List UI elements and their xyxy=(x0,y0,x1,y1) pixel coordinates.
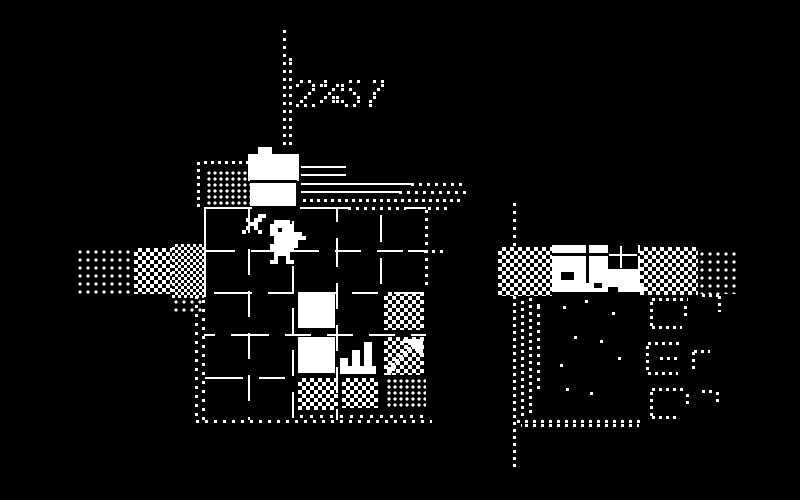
hedge-segment xyxy=(648,372,678,375)
path-checker xyxy=(134,248,172,294)
yard-checker-left xyxy=(498,247,552,296)
floor-grid-vline xyxy=(248,207,250,420)
hedge-segment xyxy=(650,302,653,326)
ground-dot xyxy=(590,392,593,395)
facade-window xyxy=(608,245,638,269)
path-dots xyxy=(76,248,134,294)
crate-tile xyxy=(298,292,335,328)
game-screen[interactable]: 2% 57 xyxy=(0,0,800,500)
yard-checker-right xyxy=(640,247,698,295)
room-left-wall-dotted xyxy=(195,296,198,422)
facade-divider xyxy=(586,245,589,283)
floor-grid-hline xyxy=(204,334,426,336)
floor-grid-hline xyxy=(204,377,300,379)
checker-tile xyxy=(384,292,424,330)
yard-dots-right xyxy=(698,250,740,294)
lamp-post-dotted-top xyxy=(513,203,516,247)
porch-mark xyxy=(594,283,602,288)
shore-dotted-2 xyxy=(521,424,639,427)
timer-pole-dotted-line xyxy=(283,30,286,150)
path-dots-lower xyxy=(172,298,204,314)
floor-dots-bottom xyxy=(300,415,430,418)
fence-dotted-3 xyxy=(537,302,540,392)
storage-dither-block xyxy=(206,170,250,206)
hedge-segment xyxy=(684,306,687,320)
side-window-dotted xyxy=(424,250,446,253)
stairs-tile xyxy=(340,342,376,374)
ground-dot xyxy=(612,312,615,315)
roof-dotted-vline xyxy=(197,162,200,208)
facade-window-mullion-v xyxy=(620,246,622,268)
hedge-segment xyxy=(660,357,680,360)
facade-window-mullion-h xyxy=(609,254,637,256)
room-top-wall-dotted xyxy=(348,207,406,210)
player-character xyxy=(266,220,306,264)
lamp-post-dotted xyxy=(513,296,516,468)
ground-dot xyxy=(560,364,563,367)
path-checker-dense xyxy=(172,244,204,298)
facade-door xyxy=(561,272,574,280)
shore-dotted xyxy=(517,420,641,423)
hedge-segment xyxy=(652,326,682,329)
shelf-line-5-dotted xyxy=(303,199,463,202)
hedge-segment xyxy=(716,392,719,406)
hedge-segment xyxy=(652,298,688,301)
hedge-segment xyxy=(650,392,653,416)
ground-dot xyxy=(574,336,577,339)
room-left-wall xyxy=(204,207,206,297)
room-top-wall-mid xyxy=(300,207,348,209)
ground-dot xyxy=(563,306,566,309)
fence-dotted-2 xyxy=(529,298,532,416)
hedge-segment xyxy=(718,296,721,312)
ground-dot xyxy=(618,357,621,360)
hedge-segment xyxy=(652,388,686,391)
fence-dotted-1 xyxy=(521,298,524,416)
player-sword xyxy=(242,214,266,234)
ground-dot xyxy=(600,340,603,343)
floor-grid-hline xyxy=(204,250,426,252)
timer-pole-dotted-line-2 xyxy=(289,58,292,150)
checker-tile xyxy=(342,378,378,408)
hedge-segment xyxy=(694,350,710,353)
hedge-segment xyxy=(692,352,695,372)
shelf-line-3-dotted xyxy=(411,183,467,186)
room-left-wall-dotted-2 xyxy=(202,296,205,422)
reception-desk-front xyxy=(250,183,296,206)
room-top-wall-right xyxy=(406,207,426,209)
shelf-line-1 xyxy=(301,166,346,168)
ground-dot xyxy=(585,300,588,303)
ground-dot xyxy=(566,388,569,391)
hedge-segment xyxy=(652,416,680,419)
shelf-line-3 xyxy=(301,183,411,185)
hedge-segment xyxy=(702,390,716,393)
dot-tile xyxy=(386,378,426,408)
hedge-segment xyxy=(648,342,682,345)
shelf-line-2 xyxy=(301,174,346,176)
room-top-wall-dotted-2 xyxy=(428,207,450,210)
reception-desk-top xyxy=(248,154,299,181)
shelf-line-4 xyxy=(301,191,399,193)
arrow-overlay xyxy=(387,339,423,375)
checker-tile xyxy=(298,378,338,410)
room-top-wall-left xyxy=(204,207,252,209)
hedge-segment xyxy=(646,346,649,372)
room-bottom-wall-dotted xyxy=(196,420,432,423)
hedge-segment xyxy=(686,394,689,406)
crate-tile xyxy=(298,337,335,373)
roof-dotted-hline xyxy=(204,161,252,164)
shelf-line-4-dotted xyxy=(399,191,467,194)
porch-mark-2 xyxy=(608,287,618,292)
